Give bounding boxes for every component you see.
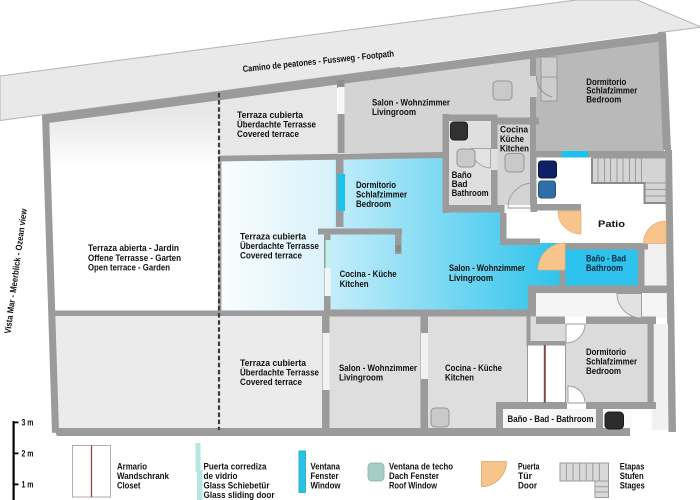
svg-text:Überdachte Terrasse: Überdachte Terrasse <box>240 241 319 251</box>
svg-text:Closet: Closet <box>117 481 141 491</box>
svg-text:Livingroom: Livingroom <box>339 373 383 383</box>
svg-text:Glass Schiebetür: Glass Schiebetür <box>204 481 270 491</box>
svg-text:Tür: Tür <box>518 471 532 481</box>
svg-text:Dormitorio: Dormitorio <box>586 347 626 357</box>
svg-text:Terraza cubierta: Terraza cubierta <box>240 232 307 242</box>
svg-text:Cocina: Cocina <box>500 125 529 135</box>
svg-text:Baño - Bad: Baño - Bad <box>586 254 626 264</box>
svg-text:Kitchen: Kitchen <box>500 144 529 154</box>
svg-text:Bedroom: Bedroom <box>586 366 621 376</box>
svg-text:1 m: 1 m <box>22 480 34 490</box>
svg-text:Offene Terrasse - Garten: Offene Terrasse - Garten <box>88 253 181 263</box>
svg-text:Dormitorio: Dormitorio <box>356 180 396 190</box>
svg-text:Door: Door <box>518 481 537 491</box>
svg-text:Ventana: Ventana <box>311 462 341 472</box>
svg-text:Glass sliding door: Glass sliding door <box>204 490 275 500</box>
svg-text:Covered terrace: Covered terrace <box>240 251 302 261</box>
svg-text:Stages: Stages <box>620 481 645 491</box>
svg-text:Roof Window: Roof Window <box>389 481 438 491</box>
svg-text:Cocina - Küche: Cocina - Küche <box>340 269 397 279</box>
svg-text:Terraza cubierta: Terraza cubierta <box>237 110 304 120</box>
svg-text:Schlafzimmer: Schlafzimmer <box>586 357 637 367</box>
svg-text:de vidrio: de vidrio <box>204 471 238 481</box>
svg-text:Ventana de techo: Ventana de techo <box>389 462 453 472</box>
svg-text:Bedroom: Bedroom <box>356 199 391 209</box>
svg-text:Dach Fenster: Dach Fenster <box>389 471 439 481</box>
svg-text:Puerta corrediza: Puerta corrediza <box>204 462 268 472</box>
svg-text:3 m: 3 m <box>22 418 34 428</box>
svg-text:Schlafzimmer: Schlafzimmer <box>356 190 407 200</box>
svg-text:Patio: Patio <box>598 219 626 229</box>
svg-text:Bedroom: Bedroom <box>586 94 621 104</box>
svg-text:Covered terrace: Covered terrace <box>240 377 302 387</box>
svg-text:Terraza abierta - Jardin: Terraza abierta - Jardin <box>88 243 179 253</box>
svg-text:Armario: Armario <box>117 462 147 472</box>
svg-text:Fenster: Fenster <box>311 471 339 481</box>
svg-text:Bathroom: Bathroom <box>586 263 623 273</box>
svg-text:Livingroom: Livingroom <box>372 107 416 117</box>
svg-text:Baño - Bad - Bathroom: Baño - Bad - Bathroom <box>508 414 594 424</box>
svg-text:Kitchen: Kitchen <box>340 279 369 289</box>
svg-text:Salon - Wohnzimmer: Salon - Wohnzimmer <box>449 263 525 273</box>
svg-text:Überdachte Terrasse: Überdachte Terrasse <box>240 368 319 378</box>
svg-text:Etapas: Etapas <box>620 462 645 472</box>
svg-text:Livingroom: Livingroom <box>449 273 493 283</box>
svg-text:Salon - Wohnzimmer: Salon - Wohnzimmer <box>339 363 417 373</box>
svg-text:Terraza cubierta: Terraza cubierta <box>240 358 307 368</box>
svg-text:2 m: 2 m <box>22 449 34 459</box>
svg-text:Puerta: Puerta <box>518 462 540 472</box>
svg-text:Window: Window <box>311 481 342 491</box>
svg-text:Stufen: Stufen <box>620 471 644 481</box>
svg-text:Kitchen: Kitchen <box>445 373 474 383</box>
svg-text:Open terrace - Garden: Open terrace - Garden <box>88 263 170 273</box>
svg-text:Covered terrace: Covered terrace <box>237 129 299 139</box>
svg-text:Küche: Küche <box>500 134 524 144</box>
svg-text:Bathroom: Bathroom <box>452 188 489 198</box>
svg-text:Überdachte Terrasse: Überdachte Terrasse <box>237 120 316 130</box>
svg-text:Wandschrank: Wandschrank <box>117 471 170 481</box>
svg-text:Cocina - Küche: Cocina - Küche <box>445 363 502 373</box>
